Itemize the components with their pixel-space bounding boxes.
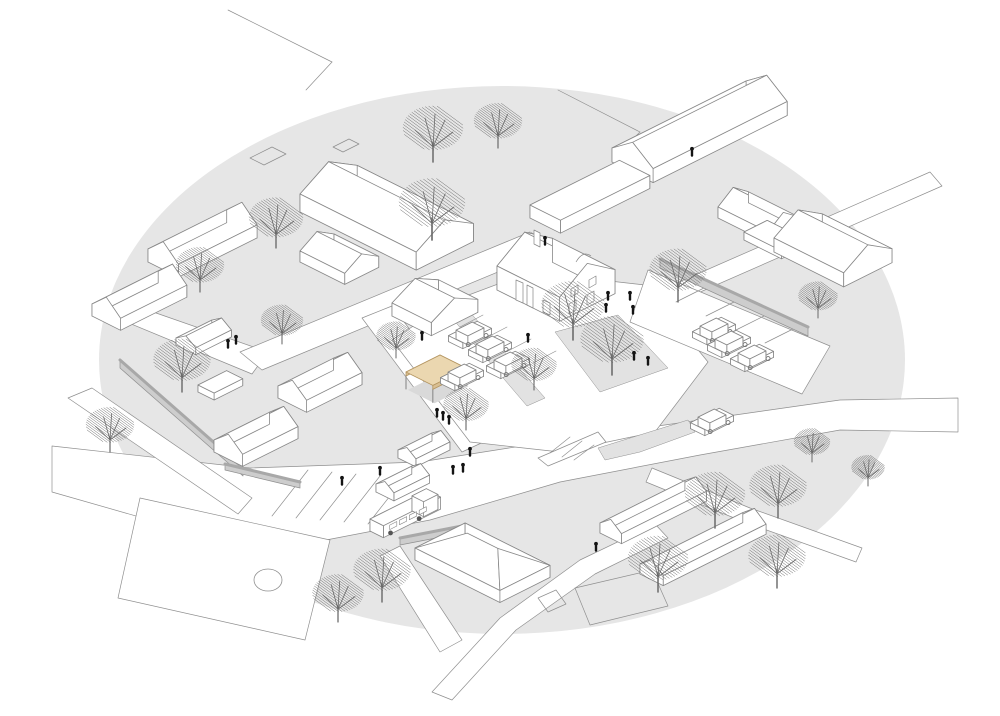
axonometric-site-plan (0, 0, 1000, 716)
chimney (534, 230, 540, 247)
door (527, 285, 533, 308)
door (516, 280, 523, 303)
bus-wheel (388, 531, 393, 536)
page (0, 0, 1000, 716)
bus-wheel (417, 516, 422, 521)
